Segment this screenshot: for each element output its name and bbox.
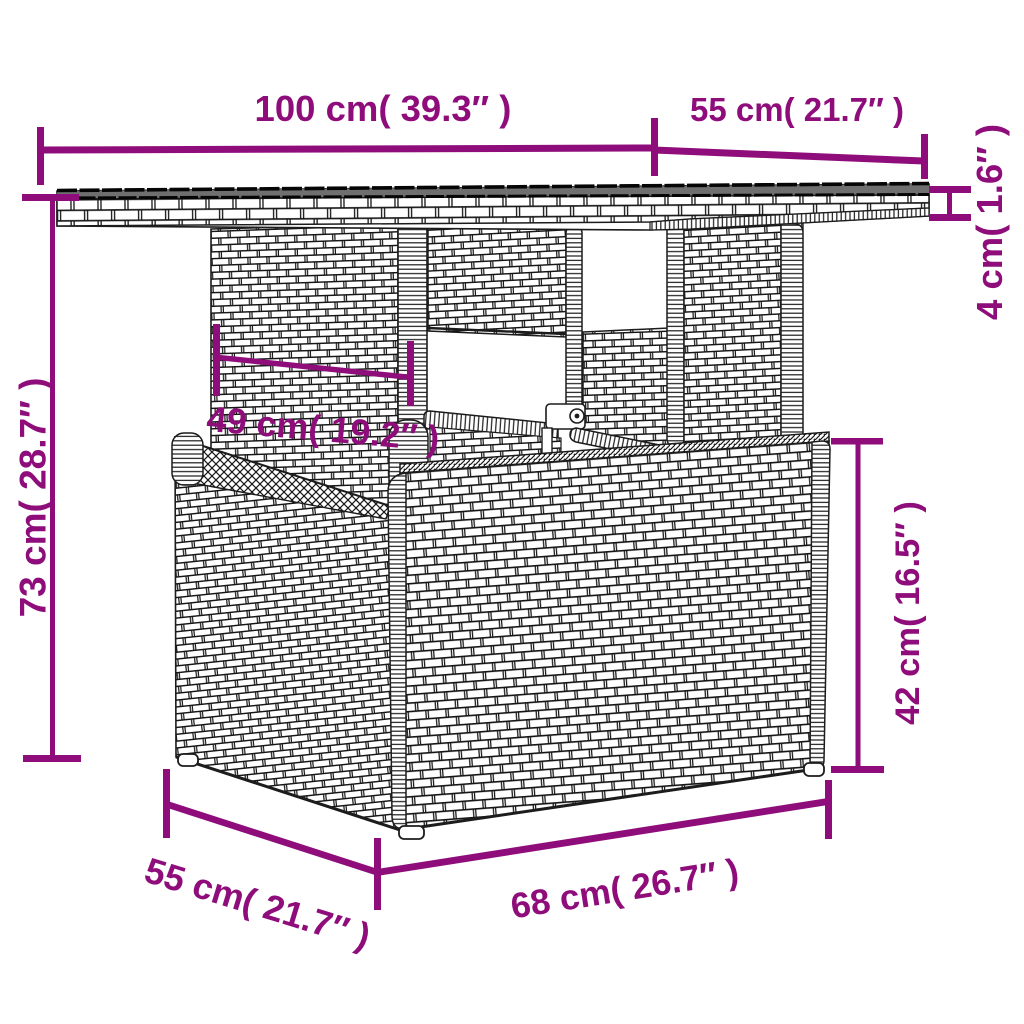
- svg-text:4 cm( 1.6″ ): 4 cm( 1.6″ ): [969, 124, 1010, 320]
- svg-text:73 cm( 28.7″ ): 73 cm( 28.7″ ): [13, 378, 54, 618]
- svg-text:100 cm( 39.3″ ): 100 cm( 39.3″ ): [255, 88, 512, 129]
- svg-text:55 cm( 21.7″ ): 55 cm( 21.7″ ): [690, 91, 904, 128]
- svg-text:42 cm( 16.5″ ): 42 cm( 16.5″ ): [889, 501, 927, 725]
